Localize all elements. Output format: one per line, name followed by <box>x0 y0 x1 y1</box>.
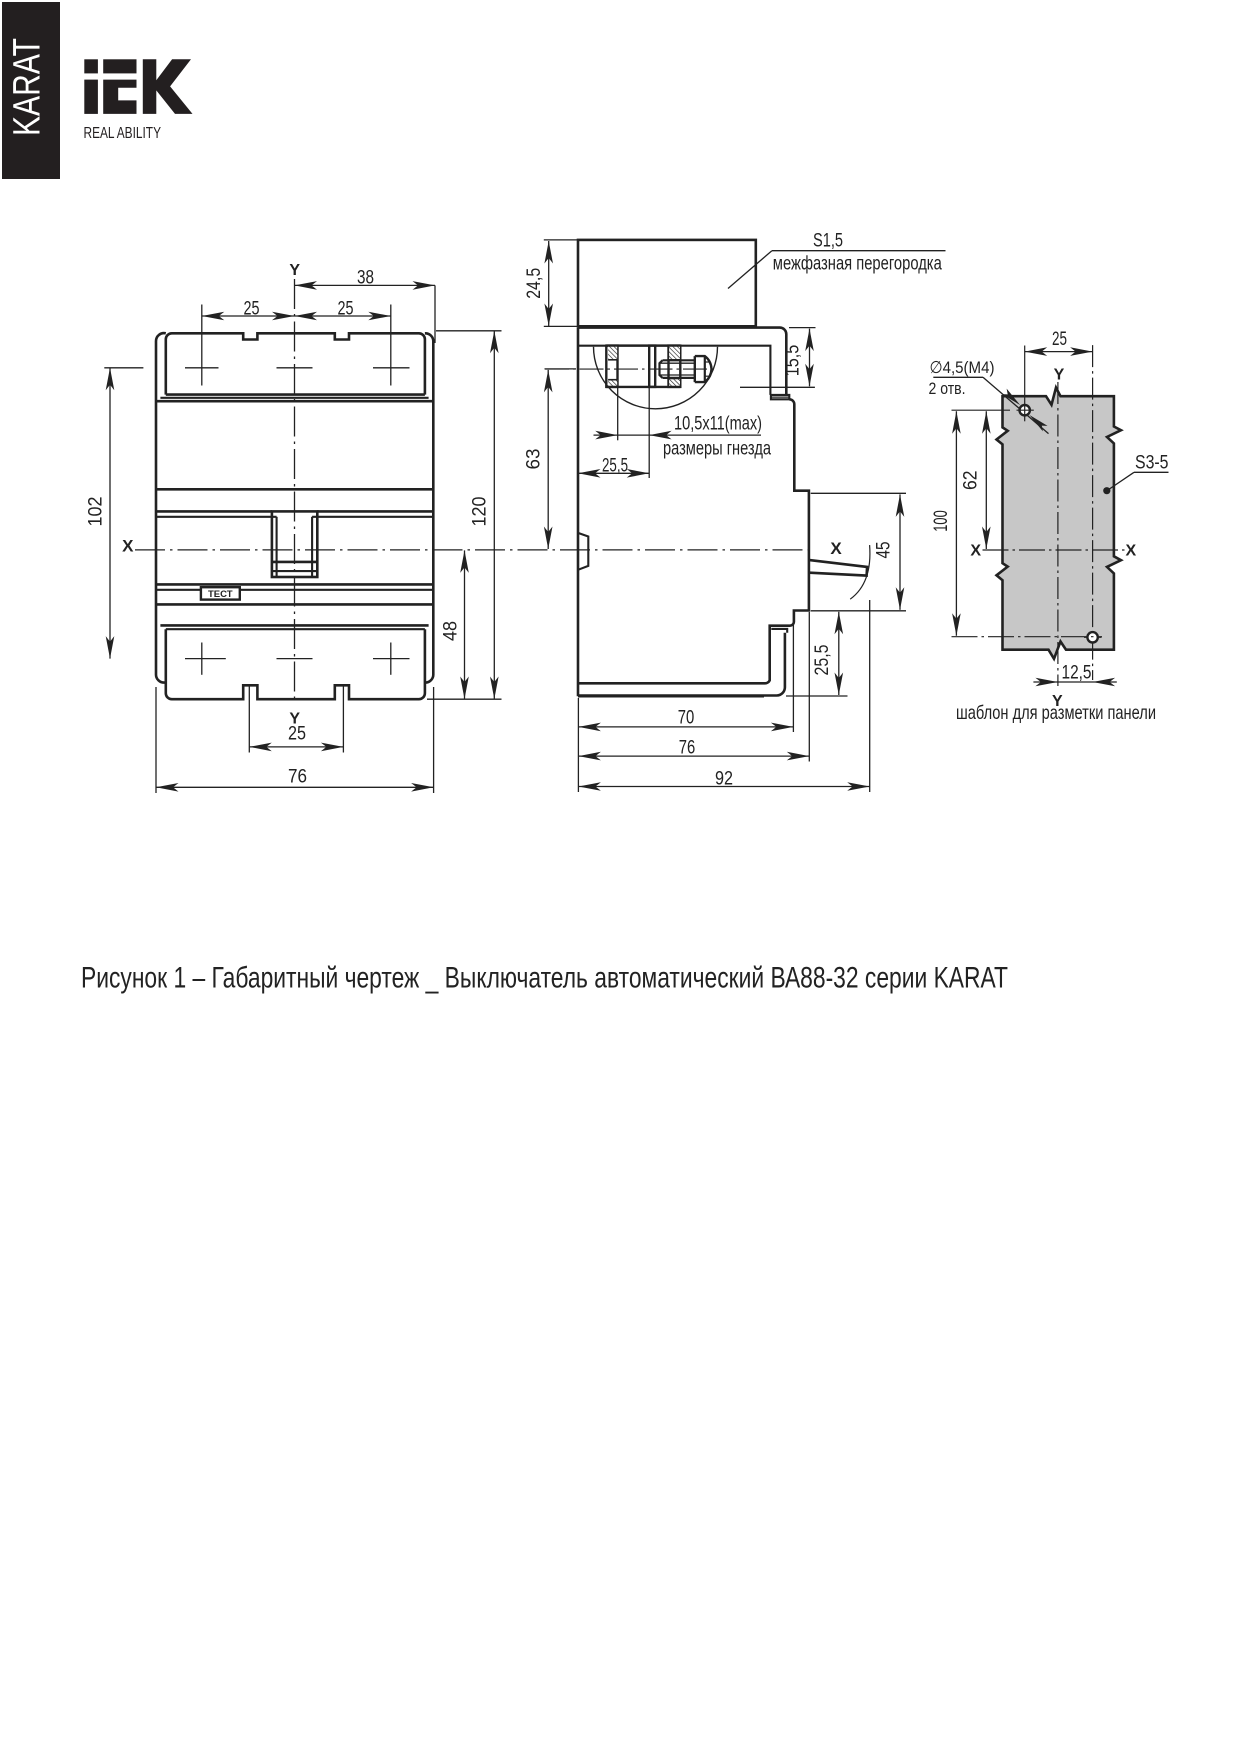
svg-text:S3-5: S3-5 <box>1135 453 1169 474</box>
svg-text:92: 92 <box>715 769 733 790</box>
svg-text:ТЕСТ: ТЕСТ <box>208 589 233 600</box>
svg-text:∅4,5(М4): ∅4,5(М4) <box>930 358 995 377</box>
svg-text:Y: Y <box>289 711 300 728</box>
svg-text:63: 63 <box>524 449 545 470</box>
svg-text:X: X <box>1126 543 1137 560</box>
svg-text:Y: Y <box>289 262 300 279</box>
svg-text:76: 76 <box>679 738 696 759</box>
svg-text:38: 38 <box>357 268 374 289</box>
svg-text:48: 48 <box>441 621 462 641</box>
svg-text:X: X <box>830 539 842 558</box>
svg-text:25,5: 25,5 <box>812 645 833 676</box>
svg-text:24,5: 24,5 <box>524 268 545 299</box>
svg-text:шаблон для разметки панели: шаблон для разметки панели <box>956 702 1156 724</box>
svg-text:25: 25 <box>338 299 354 320</box>
svg-text:70: 70 <box>678 708 695 729</box>
svg-text:2 отв.: 2 отв. <box>929 379 966 398</box>
svg-text:25: 25 <box>244 299 260 320</box>
svg-text:REAL ABILITY: REAL ABILITY <box>84 125 162 142</box>
svg-text:120: 120 <box>470 497 491 527</box>
svg-text:X: X <box>970 543 981 560</box>
svg-text:12,5: 12,5 <box>1062 663 1092 684</box>
svg-text:15,5: 15,5 <box>783 345 804 377</box>
svg-text:76: 76 <box>288 767 307 788</box>
svg-text:размеры гнезда: размеры гнезда <box>663 439 771 460</box>
svg-text:62: 62 <box>960 471 981 491</box>
svg-text:S1,5: S1,5 <box>813 231 843 252</box>
svg-text:Рисунок 1 – Габаритный чертеж: Рисунок 1 – Габаритный чертеж _ Выключат… <box>81 962 1008 995</box>
svg-text:межфазная перегородка: межфазная перегородка <box>773 254 942 275</box>
svg-text:102: 102 <box>86 497 107 527</box>
svg-text:45: 45 <box>874 542 895 559</box>
svg-text:Y: Y <box>1054 367 1065 384</box>
svg-text:100: 100 <box>931 510 952 532</box>
svg-text:10,5х11(max): 10,5х11(max) <box>674 414 762 435</box>
svg-text:X: X <box>122 537 134 556</box>
svg-text:25: 25 <box>1052 329 1067 350</box>
svg-text:25,5: 25,5 <box>602 456 628 477</box>
svg-text:KARAT: KARAT <box>7 38 49 136</box>
